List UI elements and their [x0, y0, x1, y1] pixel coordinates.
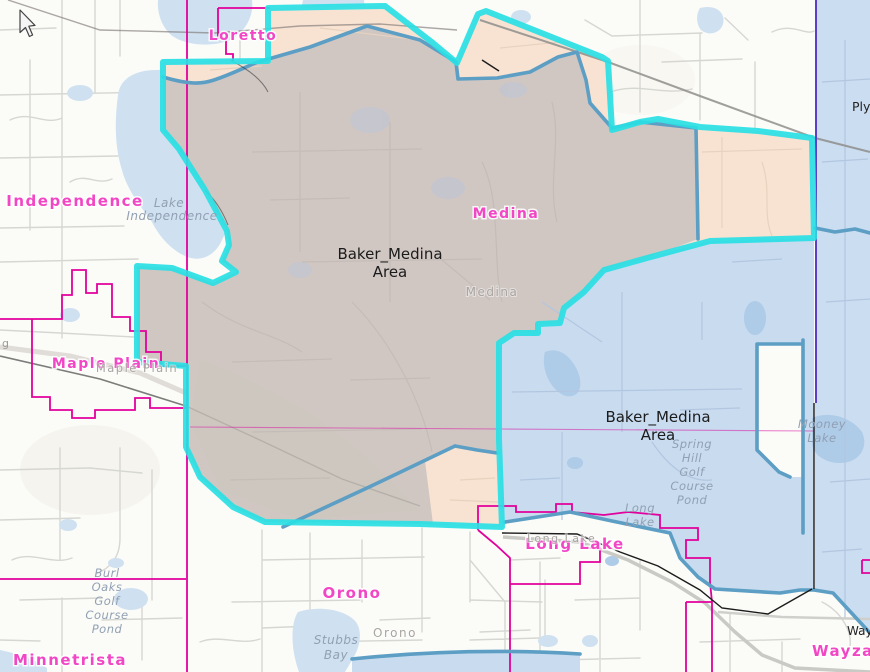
water-label-stubbs-1: Stubbs — [314, 633, 358, 647]
water-label-long-lake-1: Long — [625, 501, 655, 515]
map-viewport[interactable]: Loretto Independence Medina Maple Plain … — [0, 0, 870, 672]
town-label-medina: Medina — [466, 285, 519, 299]
water-label-mooney-2: Lake — [807, 431, 836, 445]
selection-label-1-line1: Baker_Medina — [337, 245, 442, 264]
water-label-burl-oaks-5: Pond — [92, 622, 123, 636]
water-label-burl-oaks-4: Course — [85, 608, 128, 622]
water-label-stubbs-2: Bay — [324, 648, 349, 662]
road-label-fragment: g — [2, 337, 9, 350]
water-label-spring-hill-2: Hill — [682, 451, 703, 465]
town-label-plymouth: Plymouth — [852, 99, 870, 114]
town-label-maple-plain: Maple Plain — [96, 361, 178, 375]
water-label-spring-hill-5: Pond — [677, 493, 708, 507]
district-peach-patch-south[interactable] — [425, 446, 502, 527]
district-plymouth[interactable] — [815, 0, 870, 633]
water-label-burl-oaks-1: Burl — [94, 566, 119, 580]
selection-label-1-line2: Area — [373, 263, 408, 281]
city-label-medina: Medina — [473, 206, 540, 222]
selection-label-2-line2: Area — [641, 426, 676, 444]
water-label-spring-hill-1: Spring — [672, 437, 712, 451]
water-label-spring-hill-3: Golf — [679, 465, 706, 479]
selection-label-2-line1: Baker_Medina — [605, 408, 710, 427]
water-label-spring-hill-4: Course — [670, 479, 713, 493]
town-label-orono: Orono — [373, 626, 417, 640]
city-label-loretto: Loretto — [209, 28, 277, 44]
water-label-burl-oaks-3: Golf — [94, 594, 121, 608]
city-label-orono: Orono — [323, 584, 382, 602]
city-label-independence: Independence — [6, 192, 143, 210]
town-label-long-lake: Long Lake — [527, 532, 596, 545]
map-canvas[interactable]: Loretto Independence Medina Maple Plain … — [0, 0, 870, 672]
water-label-long-lake-2: Lake — [625, 515, 654, 529]
water-label-lake-independence-2: Independence — [126, 209, 217, 223]
water-label-burl-oaks-2: Oaks — [92, 580, 123, 594]
town-label-wayzata: Wayzata — [847, 624, 870, 638]
city-label-minnetrista: Minnetrista — [13, 651, 127, 669]
water-label-lake-independence-1: Lake — [154, 196, 184, 210]
city-label-wayzata: Wayzata — [812, 642, 870, 660]
water-label-mooney-1: Mooney — [798, 417, 846, 431]
